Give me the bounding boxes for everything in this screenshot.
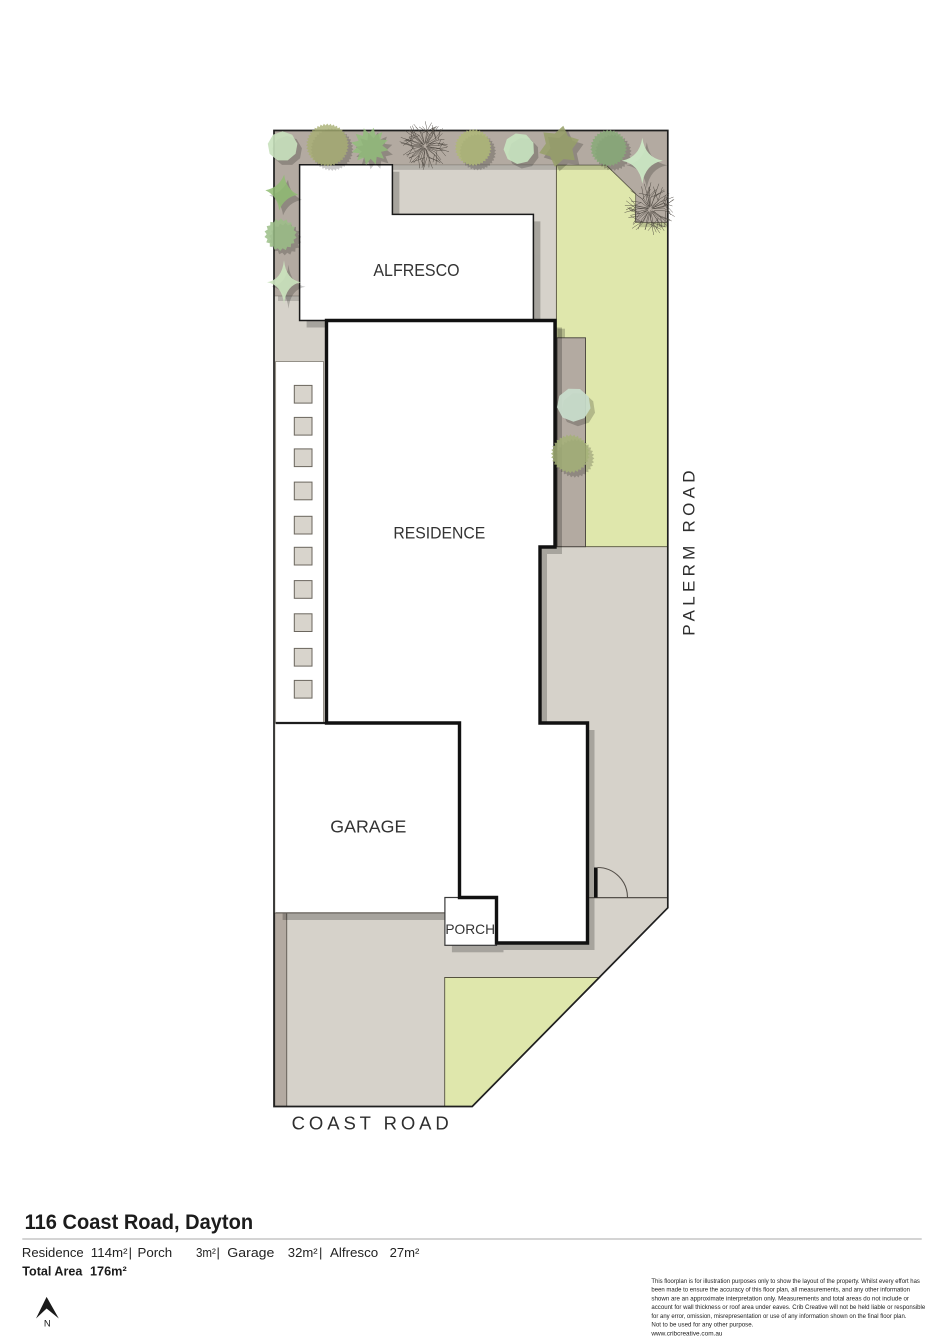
svg-text:116 Coast Road, Dayton: 116 Coast Road, Dayton xyxy=(25,1211,254,1234)
svg-text:Total Area: Total Area xyxy=(22,1265,83,1279)
svg-text:Garage: Garage xyxy=(227,1245,274,1260)
svg-text:COAST ROAD: COAST ROAD xyxy=(292,1113,449,1134)
svg-text:account for wall thickness or: account for wall thickness or roof area … xyxy=(651,1304,925,1311)
svg-text:GARAGE: GARAGE xyxy=(330,817,406,837)
svg-text:PALERM ROAD: PALERM ROAD xyxy=(680,470,699,635)
svg-text:Alfresco: Alfresco xyxy=(330,1245,378,1260)
svg-text:N: N xyxy=(44,1319,51,1330)
svg-text:shown are an approximate inter: shown are an approximate interpretation … xyxy=(651,1295,909,1302)
svg-text:|: | xyxy=(319,1245,322,1260)
svg-text:This floorplan is for illustra: This floorplan is for illustration purpo… xyxy=(651,1278,920,1285)
svg-text:3m²: 3m² xyxy=(196,1245,216,1260)
svg-text:Porch: Porch xyxy=(138,1245,173,1260)
svg-text:RESIDENCE: RESIDENCE xyxy=(393,524,485,543)
svg-text:ALFRESCO: ALFRESCO xyxy=(373,260,459,280)
svg-text:Residence: Residence xyxy=(22,1245,84,1260)
svg-text:PORCH: PORCH xyxy=(445,921,495,937)
svg-text:for any error, omission, misre: for any error, omission, misrepresentati… xyxy=(651,1313,906,1320)
svg-text:been made to ensure the accura: been made to ensure the accuracy of this… xyxy=(651,1287,910,1294)
svg-text:176m²: 176m² xyxy=(90,1265,127,1279)
svg-text:27m²: 27m² xyxy=(390,1245,420,1260)
svg-text:www.cribcreative.com.au: www.cribcreative.com.au xyxy=(650,1330,723,1337)
svg-text:114m²: 114m² xyxy=(91,1245,128,1260)
svg-text:|: | xyxy=(129,1245,132,1260)
svg-text:32m²: 32m² xyxy=(288,1245,318,1260)
svg-text:|: | xyxy=(217,1245,220,1260)
svg-text:Not to be used for any other p: Not to be used for any other purpose. xyxy=(651,1322,753,1329)
